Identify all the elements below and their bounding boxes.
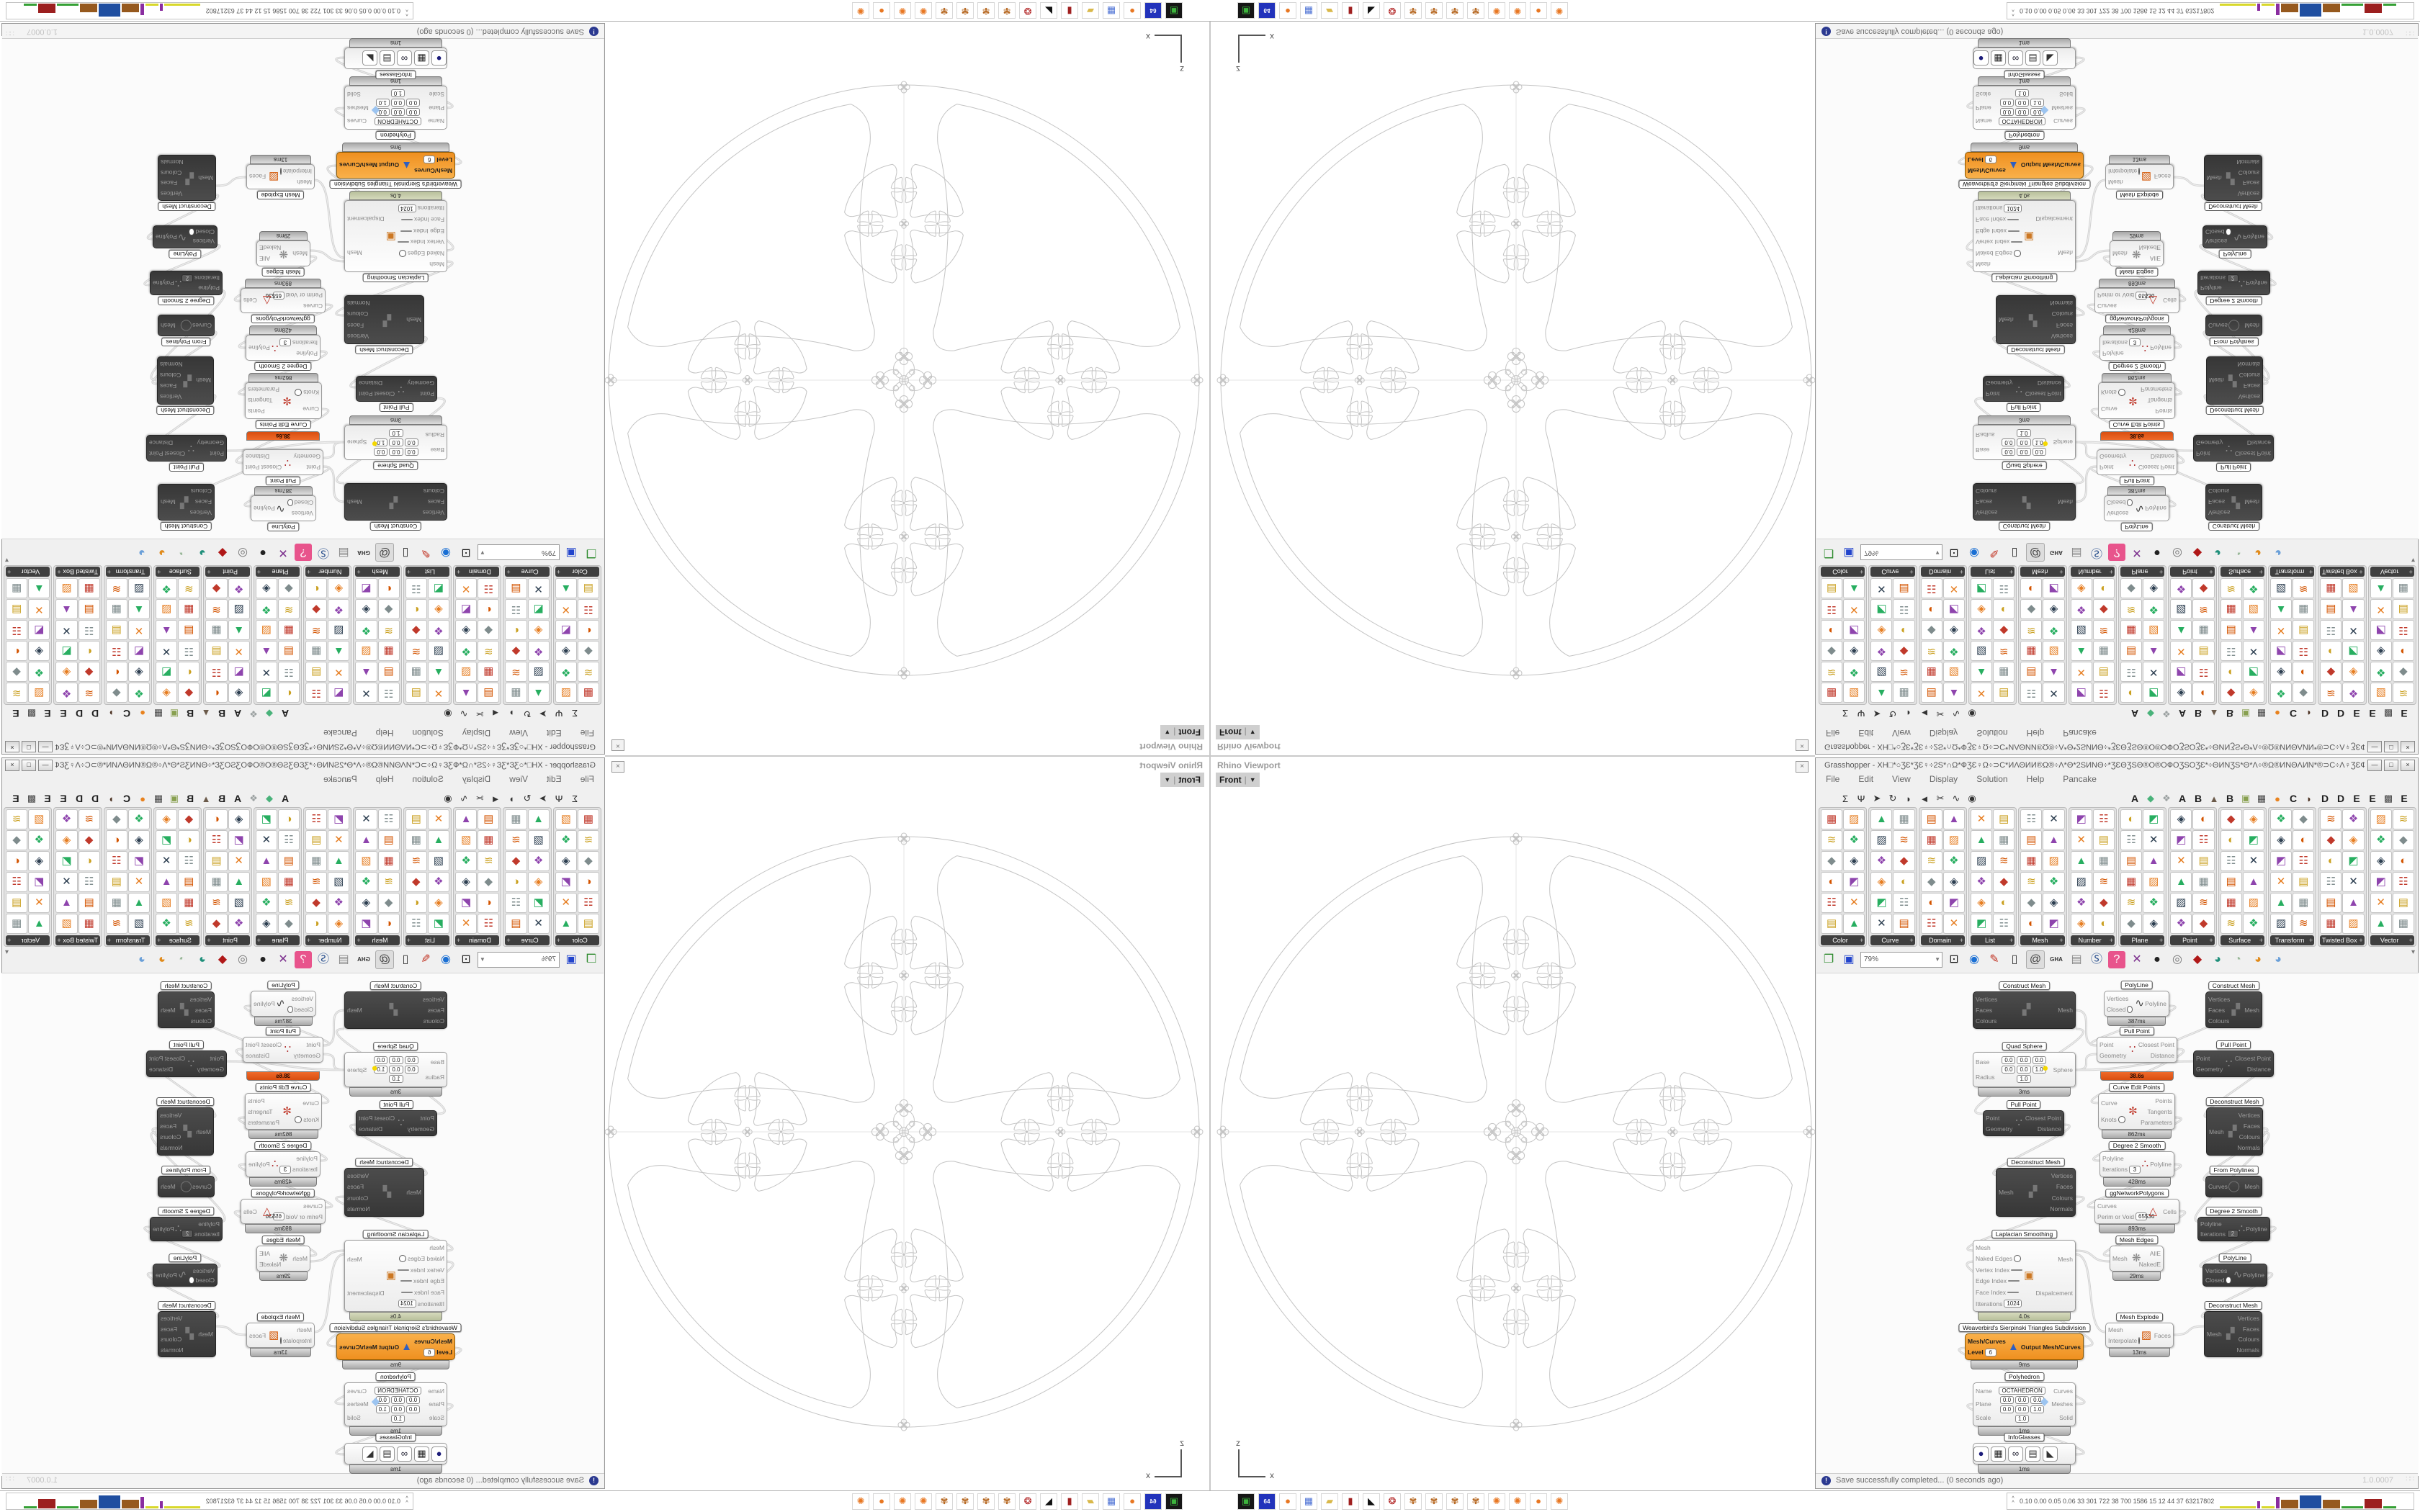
name-value-box[interactable]: OCTAHEDRON	[375, 118, 421, 126]
palette-group-label[interactable]: List+	[405, 935, 449, 945]
value-box[interactable]: 6	[423, 1349, 435, 1356]
palette-group-label[interactable]: Curve+	[1870, 935, 1914, 945]
component-icon[interactable]: ≋	[2393, 683, 2414, 703]
output-port-solid[interactable]: Solid	[347, 1414, 361, 1421]
component-icon[interactable]: ☷	[205, 662, 227, 682]
component-icon[interactable]: ◈	[228, 809, 250, 829]
toggle-circle[interactable]	[399, 250, 406, 257]
balloon-blue-icon[interactable]: ◕	[2269, 951, 2287, 968]
input-port-vertices[interactable]: Vertices	[2107, 510, 2133, 518]
input-port-scale[interactable]: Scale	[1976, 1414, 1993, 1421]
component-icon[interactable]: ≋	[505, 830, 526, 850]
toggle-circle[interactable]	[287, 500, 293, 507]
info-chip-icon[interactable]: ∞	[397, 51, 412, 66]
profiler-chevrons-icon[interactable]: ^^	[403, 1497, 411, 1506]
component-icon[interactable]: ≋	[6, 683, 27, 703]
inkscape-icon[interactable]: ◣	[1363, 2, 1380, 19]
component-icon[interactable]: ☷	[378, 683, 400, 703]
rhino-viewport[interactable]: Rhino Viewport Front | ▼ × z x	[605, 756, 1210, 1490]
media-red-icon[interactable]: ▮	[1061, 1493, 1078, 1510]
menu-item-help[interactable]: Help	[2027, 774, 2045, 788]
output-port-curves[interactable]: Curves	[347, 1387, 367, 1395]
tab-d1[interactable]: D	[2317, 793, 2333, 804]
output-port-normals[interactable]: Normals	[160, 361, 183, 368]
component-icon[interactable]: ◐	[1921, 893, 1942, 913]
input-port-closed[interactable]: Closed	[2107, 500, 2133, 507]
component-icon[interactable]: ▨	[2370, 683, 2392, 703]
galapagos-icon[interactable]: ✕	[2128, 951, 2146, 968]
output-port-distance[interactable]: Distance	[246, 454, 269, 461]
menu-item-help[interactable]: Help	[376, 774, 394, 788]
gimp-icon-4[interactable]: ✾	[936, 1493, 953, 1510]
tab-e3[interactable]: E	[8, 793, 24, 804]
input-port-mesh[interactable]: Mesh	[194, 1128, 211, 1135]
output-port-distance[interactable]: Distance	[2038, 1125, 2061, 1133]
output-port-sphere[interactable]: Sphere	[347, 439, 367, 446]
component-icon[interactable]: ❖	[2270, 683, 2292, 703]
help-box-icon[interactable]: ?	[2108, 951, 2125, 968]
info-chip-icon[interactable]: ∞	[2008, 1446, 2023, 1462]
component-icon[interactable]: ☷	[278, 830, 300, 850]
output-port-distance[interactable]: Distance	[149, 439, 173, 446]
component-icon[interactable]: ✕	[1971, 683, 1992, 703]
component-icon[interactable]: ◩	[455, 599, 477, 619]
component-icon[interactable]: ▤	[2093, 830, 2115, 850]
component-icon[interactable]: ▨	[228, 893, 250, 913]
output-port-cells[interactable]: Cells	[2163, 297, 2177, 305]
canvas-zoom-select[interactable]: 79%▼	[1860, 544, 1942, 560]
component-icon[interactable]: ❖	[2143, 893, 2164, 913]
output-port-closest-point[interactable]: Closest Point	[359, 391, 395, 398]
input-port-mesh[interactable]: Mesh	[1976, 1244, 2022, 1251]
output-port-output-mesh-curves[interactable]: Output Mesh/Curves	[2021, 162, 2081, 169]
component-icon[interactable]: ◐	[2093, 914, 2115, 934]
component-icon[interactable]: ◩	[28, 620, 50, 640]
maximize-button[interactable]: □	[22, 741, 36, 752]
component-icon[interactable]: ☷	[2220, 851, 2242, 871]
component-icon[interactable]: ◩	[1971, 914, 1992, 934]
output-port-polyline[interactable]: Polyline	[2150, 1161, 2172, 1168]
plane-value-box[interactable]: 0.0	[405, 1066, 418, 1074]
component-icon[interactable]: ☷	[405, 914, 427, 934]
component-icon[interactable]: ☷	[6, 620, 27, 640]
component-icon[interactable]: ☷	[1921, 914, 1942, 934]
preview-eye-icon[interactable]: ◉	[437, 544, 454, 561]
component-icon[interactable]: ◈	[1971, 599, 1992, 619]
component-icon[interactable]: ◩	[156, 830, 177, 850]
component-icon[interactable]: ❖	[528, 851, 550, 871]
plane-value-box[interactable]: 0.0	[2015, 1405, 2029, 1413]
input-port-base[interactable]: Base	[426, 446, 444, 454]
component-icon[interactable]: ≋	[2293, 578, 2314, 598]
component-icon[interactable]: ◐	[2120, 809, 2142, 829]
component-icon[interactable]: ❖	[555, 662, 577, 682]
tab-d2[interactable]: D	[2333, 793, 2349, 804]
component-icon[interactable]: ◩	[2243, 662, 2264, 682]
window-titlebar[interactable]: Grasshopper - XH□*○ƷƐ*ƷƐ♀÷2S*∩Ω*ФƷƐ♀Ω÷⊃C…	[2, 758, 604, 773]
gimp-icon-3[interactable]: ✾	[1446, 2, 1464, 19]
tab-gem-icon[interactable]: ◆	[2143, 793, 2159, 804]
plane-value-box[interactable]: 0.0	[2015, 109, 2029, 117]
component-icon[interactable]: ▦	[478, 830, 499, 850]
component-icon[interactable]: ❖	[228, 578, 250, 598]
sets-tree-icon[interactable]: Ψ	[551, 793, 567, 804]
component-icon[interactable]: ❖	[228, 914, 250, 934]
resize-grip[interactable]: ∷∷	[6, 1475, 14, 1483]
output-port-distance[interactable]: Distance	[359, 1125, 382, 1133]
output-port-polyline[interactable]: Polyline	[248, 1161, 270, 1168]
component-icon[interactable]: ▦	[2020, 851, 2042, 871]
palette-group-label[interactable]: Plane+	[2120, 935, 2164, 945]
component-icon[interactable]: ◈	[256, 914, 277, 934]
output-port-nakede[interactable]: NakedE	[259, 1261, 281, 1268]
input-port-colours[interactable]: Colours	[423, 1017, 444, 1025]
component-icon[interactable]: ≋	[205, 893, 227, 913]
component-icon[interactable]: ≋	[2192, 599, 2214, 619]
component-icon[interactable]: ❖	[2170, 578, 2192, 598]
palette-group-label[interactable]: Vector+	[6, 567, 50, 577]
gh-node-from-polylines[interactable]: From PolylinesCurves◯Mesh	[158, 1176, 215, 1197]
input-port-face-index[interactable]: Face Index	[1976, 1289, 2022, 1296]
input-port-closed[interactable]: Closed	[287, 1006, 313, 1013]
component-icon[interactable]: ▤	[1921, 809, 1942, 829]
gha-installer-icon[interactable]: GHA	[2048, 544, 2065, 561]
component-icon[interactable]: ☷	[305, 683, 327, 703]
component-icon[interactable]: ▤	[79, 893, 100, 913]
finder-icon[interactable]: Ⓢ	[315, 544, 332, 561]
palette-group-label[interactable]: Number+	[2071, 935, 2115, 945]
input-port-name[interactable]: Name	[1976, 117, 1993, 125]
transform-curl-icon[interactable]: ∿	[456, 793, 472, 804]
tab-b1[interactable]: B	[214, 793, 230, 804]
component-icon[interactable]: ◈	[2170, 809, 2192, 829]
component-icon[interactable]: ◆	[2093, 893, 2115, 913]
gh-node-mesh-explode[interactable]: Mesh ExplodeMeshInterpolate▨Faces13ms	[246, 164, 315, 189]
toggle-circle[interactable]	[287, 1006, 293, 1013]
component-icon[interactable]: ❖	[2370, 830, 2392, 850]
gimp-icon-4[interactable]: ✾	[936, 2, 953, 19]
zoom-extents-icon[interactable]: ⊡	[1945, 951, 1963, 968]
input-port-radius[interactable]: Radius	[1976, 431, 1994, 438]
gh-node-construct-mesh[interactable]: Construct MeshVerticesFacesColours▞Mesh	[2205, 991, 2262, 1028]
palette-group-label[interactable]: Transform+	[2270, 567, 2314, 577]
component-icon[interactable]: ▤	[305, 830, 327, 850]
output-port-nakede[interactable]: NakedE	[2139, 245, 2161, 252]
component-icon[interactable]: ◆	[1893, 851, 1914, 871]
component-icon[interactable]: ▦	[106, 893, 127, 913]
component-icon[interactable]: ▨	[1870, 662, 1892, 682]
palette-group-label[interactable]: Point+	[2170, 935, 2214, 945]
component-icon[interactable]: ✕	[1943, 914, 1965, 934]
component-icon[interactable]: ◐	[278, 809, 300, 829]
blender-icon-1[interactable]: ✺	[1488, 1493, 1505, 1510]
component-icon[interactable]: ❖	[256, 893, 277, 913]
component-icon[interactable]: ▦	[2393, 578, 2414, 598]
tab-shield-icon[interactable]: ▣	[2238, 708, 2254, 719]
viewport-close-button[interactable]: ×	[1796, 739, 1809, 751]
component-icon[interactable]: ✕	[2243, 851, 2264, 871]
vector-arrow-icon[interactable]: ➤	[1869, 708, 1885, 719]
input-port-iterations[interactable]: Iterations3	[2102, 338, 2140, 346]
value-box[interactable]: 3	[279, 338, 291, 346]
component-icon[interactable]: ◆	[578, 641, 599, 661]
output-port-distance[interactable]: Distance	[359, 380, 382, 387]
gh-node-pull-point[interactable]: Pull PointPointGeometry∵Closest PointDis…	[356, 1110, 437, 1136]
plane-value-box[interactable]: 0.0	[406, 1405, 420, 1413]
info-chip-icon[interactable]: ◣	[362, 1446, 377, 1462]
input-port-point[interactable]: Point	[408, 1115, 434, 1122]
component-icon[interactable]: ◐	[79, 641, 100, 661]
component-icon[interactable]: ◐	[405, 893, 427, 913]
mesh-kite-icon[interactable]: ◄	[1917, 793, 1932, 804]
tab-bird-icon[interactable]: ◗	[103, 793, 119, 804]
gh-node-degree-2-smooth[interactable]: Degree 2 SmoothPolylineIterations2∴Polyl…	[2197, 1217, 2270, 1241]
menu-item-edit[interactable]: Edit	[547, 724, 562, 738]
surface-patch-icon[interactable]: ◗	[503, 708, 519, 719]
component-icon[interactable]: ▲	[355, 830, 377, 850]
component-icon[interactable]: ◩	[2170, 662, 2192, 682]
output-port-cells[interactable]: Cells	[243, 297, 257, 305]
output-port-colours[interactable]: Colours	[2238, 1336, 2259, 1343]
component-icon[interactable]: ✕	[328, 830, 349, 850]
input-port-naked-edges[interactable]: Naked Edges	[1976, 250, 2022, 257]
component-icon[interactable]: ≋	[178, 578, 200, 598]
component-icon[interactable]: ▲	[28, 914, 50, 934]
tab-b1[interactable]: B	[2190, 793, 2206, 804]
plane-value-box[interactable]: 0.0	[406, 1396, 420, 1404]
output-port-faces[interactable]: Faces	[347, 1183, 364, 1190]
input-port-mesh[interactable]: Mesh	[194, 377, 211, 384]
output-port-closest-point[interactable]: Closest Point	[2235, 450, 2271, 457]
menu-item-display[interactable]: Display	[462, 724, 490, 738]
component-icon[interactable]: ❖	[1870, 641, 1892, 661]
blender-icon-2[interactable]: ✺	[894, 2, 911, 19]
tab-b1[interactable]: B	[2190, 708, 2206, 719]
output-port-cells[interactable]: Cells	[2163, 1208, 2177, 1215]
plane-value-box[interactable]: 0.0	[405, 438, 418, 446]
value-box[interactable]: 2	[181, 274, 193, 282]
component-icon[interactable]: ◩	[528, 893, 550, 913]
component-icon[interactable]: ❖	[2370, 662, 2392, 682]
tab-flower-icon[interactable]: ❖	[2159, 793, 2174, 804]
gh-node-from-polylines[interactable]: From PolylinesCurves◯Mesh	[2205, 1176, 2262, 1197]
menu-item-edit[interactable]: Edit	[547, 774, 562, 788]
component-icon[interactable]: ◈	[2270, 830, 2292, 850]
output-port-faces[interactable]: Faces	[2244, 1122, 2260, 1130]
input-port-curve[interactable]: Curve	[2101, 405, 2125, 413]
component-icon[interactable]: ✕	[2170, 641, 2192, 661]
component-icon[interactable]: ☷	[578, 599, 599, 619]
input-port-curves[interactable]: Curves	[2097, 302, 2146, 310]
input-port-itterations[interactable]: Itterations1024	[398, 204, 444, 212]
gimp-icon-1[interactable]: ✾	[1404, 2, 1422, 19]
output-port-polyline[interactable]: Polyline	[2243, 1272, 2264, 1279]
output-port-nakede[interactable]: NakedE	[259, 245, 281, 252]
firefox-icon-2[interactable]: ●	[1530, 1493, 1547, 1510]
component-icon[interactable]: ✕	[2170, 851, 2192, 871]
maths-sigma-icon[interactable]: Σ	[567, 708, 583, 719]
component-icon[interactable]: ✕	[256, 662, 277, 682]
component-icon[interactable]: ☷	[2192, 830, 2214, 850]
toggle-circle[interactable]	[2226, 1277, 2231, 1284]
input-port-mesh-curves[interactable]: Mesh/Curves	[414, 168, 452, 175]
galapagos-icon[interactable]: ✕	[2128, 544, 2146, 561]
info-chip-icon[interactable]: ∞	[397, 1446, 412, 1462]
input-port-geometry[interactable]: Geometry	[197, 1066, 224, 1073]
tab-e1[interactable]: E	[2349, 708, 2365, 719]
input-port-base[interactable]: Base	[1976, 1058, 1994, 1066]
component-icon[interactable]: ✕	[555, 893, 577, 913]
exit-door-icon[interactable]: ▯	[397, 951, 414, 968]
output-port-mesh[interactable]: Mesh	[161, 322, 176, 329]
output-port-colours[interactable]: Colours	[161, 1336, 181, 1343]
blender-icon-1[interactable]: ✺	[1488, 2, 1505, 19]
gh-node-mesh-explode[interactable]: Mesh ExplodeMeshInterpolate▨Faces13ms	[2105, 1323, 2174, 1348]
value-box[interactable]: 3	[2129, 338, 2141, 346]
input-port-faces[interactable]: Faces	[191, 499, 212, 506]
plane-value-box[interactable]: 0.0	[391, 1405, 405, 1413]
input-port-colours[interactable]: Colours	[2208, 488, 2229, 495]
component-icon[interactable]: ▨	[455, 830, 477, 850]
help-box-icon[interactable]: ?	[295, 544, 312, 561]
input-port-naked-edges[interactable]: Naked Edges	[398, 1255, 444, 1262]
palette-group-label[interactable]: Plane+	[2120, 567, 2164, 577]
balloon-green-icon[interactable]: ◕	[2209, 544, 2226, 561]
output-port-parameters[interactable]: Parameters	[248, 1119, 279, 1126]
component-icon[interactable]: ☷	[2393, 620, 2414, 640]
component-icon[interactable]: ▲	[2243, 620, 2264, 640]
component-icon[interactable]: ≋	[6, 809, 27, 829]
input-port-vertices[interactable]: Vertices	[1976, 996, 1997, 1003]
output-port-meshes[interactable]: Meshes	[347, 104, 369, 112]
component-icon[interactable]: ▦	[2220, 599, 2242, 619]
component-icon[interactable]: ✕	[555, 599, 577, 619]
gh-node-infoglasses[interactable]: InfoGlasses●▦∞▤◣1ms	[1973, 1443, 2076, 1464]
output-port-polyline[interactable]: Polyline	[2145, 505, 2166, 512]
gh-node-construct-mesh[interactable]: Construct MeshVerticesFacesColours▞Mesh	[158, 484, 215, 521]
gh-node-construct-mesh[interactable]: Construct MeshVerticesFacesColours▞Mesh	[344, 483, 447, 521]
component-icon[interactable]: ▲	[428, 662, 449, 682]
menu-item-help[interactable]: Help	[376, 724, 394, 738]
cluster-black-icon[interactable]: ●	[2148, 951, 2166, 968]
component-icon[interactable]: ❖	[355, 620, 377, 640]
vector-arrow-icon[interactable]: ➤	[535, 793, 551, 804]
component-icon[interactable]: ▤	[278, 641, 300, 661]
component-icon[interactable]: ≋	[2120, 599, 2142, 619]
component-icon[interactable]: ◐	[2020, 914, 2042, 934]
toggle-circle[interactable]	[2118, 1116, 2125, 1123]
gh-node-ggnetworkpolygons[interactable]: ggNetworkPolygonsCurvesPerim or Void6553…	[241, 288, 326, 313]
component-icon[interactable]: ◆	[1993, 872, 2015, 892]
component-icon[interactable]: ◩	[1971, 578, 1992, 598]
output-port-closest-point[interactable]: Closest Point	[246, 1041, 282, 1048]
component-icon[interactable]: ▨	[2043, 851, 2064, 871]
gh-node-laplacian-smoothing[interactable]: Laplacian SmoothingMeshNaked EdgesVertex…	[344, 200, 447, 272]
component-icon[interactable]: ≋	[1921, 851, 1942, 871]
component-icon[interactable]: ✕	[2071, 830, 2092, 850]
value-box[interactable]	[401, 219, 413, 220]
component-icon[interactable]: ▲	[55, 893, 77, 913]
component-icon[interactable]: ✕	[428, 809, 449, 829]
input-port-face-index[interactable]: Face Index	[398, 216, 444, 223]
component-icon[interactable]: ◈	[555, 641, 577, 661]
component-icon[interactable]: ☷	[178, 851, 200, 871]
gimp-icon-2[interactable]: ✾	[1425, 1493, 1443, 1510]
sketch-pen-icon[interactable]: ✎	[1986, 544, 2003, 561]
sketch-pen-icon[interactable]: ✎	[1986, 951, 2003, 968]
component-icon[interactable]: ◩	[2071, 683, 2092, 703]
palette-group-label[interactable]: Color+	[555, 567, 599, 577]
output-port-solid[interactable]: Solid	[2059, 91, 2073, 98]
component-icon[interactable]: ☷	[205, 830, 227, 850]
component-icon[interactable]: ▤	[79, 599, 100, 619]
component-icon[interactable]: ◐	[106, 830, 127, 850]
component-icon[interactable]: ◈	[1870, 620, 1892, 640]
component-icon[interactable]: ◐	[2093, 578, 2115, 598]
component-icon[interactable]: ▨	[1943, 662, 1965, 682]
output-port-closest-point[interactable]: Closest Point	[149, 450, 185, 457]
transform-curl-icon[interactable]: ∿	[1948, 708, 1964, 719]
component-icon[interactable]: ◐	[578, 872, 599, 892]
gh-node-construct-mesh[interactable]: Construct MeshVerticesFacesColours▞Mesh	[1973, 991, 2076, 1029]
value-box[interactable]	[398, 241, 409, 243]
value-box[interactable]	[398, 1269, 409, 1271]
value-box[interactable]: 65536	[273, 1212, 284, 1220]
ruby-gem-icon[interactable]: ◆	[2189, 544, 2206, 561]
output-port-vertices[interactable]: Vertices	[160, 393, 181, 400]
component-icon[interactable]: ◆	[378, 893, 400, 913]
component-icon[interactable]: ≋	[405, 851, 427, 871]
input-port-vertices[interactable]: Vertices	[189, 1267, 215, 1274]
component-icon[interactable]: ❖	[428, 872, 449, 892]
input-port-polyline[interactable]: Polyline	[281, 350, 318, 357]
component-icon[interactable]: ◆	[106, 683, 127, 703]
tab-b1[interactable]: B	[214, 708, 230, 719]
minimize-button[interactable]: —	[2367, 741, 2382, 752]
output-port-mesh[interactable]: Mesh	[161, 499, 176, 506]
component-icon[interactable]: ≋	[1993, 851, 2015, 871]
component-icon[interactable]: ≋	[278, 599, 300, 619]
component-icon[interactable]: ☷	[505, 599, 526, 619]
balloon-orange-icon[interactable]: ◕	[153, 544, 171, 561]
value-box[interactable]: 1024	[2004, 204, 2022, 212]
component-icon[interactable]: ◩	[2243, 830, 2264, 850]
input-port-curves[interactable]: Curves	[2208, 322, 2226, 329]
balloon-pale-icon[interactable]: ◔	[2229, 544, 2246, 561]
blender-icon-3[interactable]: ✺	[852, 2, 869, 19]
save-file-icon[interactable]: ▣	[1840, 544, 1857, 561]
input-port-closed[interactable]: Closed	[2205, 1277, 2231, 1284]
component-icon[interactable]: ✕	[2043, 683, 2064, 703]
component-icon[interactable]: ◩	[128, 851, 150, 871]
component-icon[interactable]: ▤	[2020, 830, 2042, 850]
component-icon[interactable]: ✕	[455, 578, 477, 598]
preview-eye-icon[interactable]: ◉	[437, 951, 454, 968]
component-icon[interactable]: ◈	[1843, 851, 1865, 871]
output-port-alle[interactable]: AllE	[2150, 1250, 2161, 1257]
input-port-geometry[interactable]: Geometry	[294, 454, 321, 461]
component-icon[interactable]: ❖	[55, 683, 77, 703]
firefox-icon-2[interactable]: ●	[1530, 2, 1547, 19]
gh-node-degree-2-smooth[interactable]: Degree 2 SmoothPolylineIterations2∴Polyl…	[150, 271, 223, 295]
component-icon[interactable]: ▤	[478, 809, 499, 829]
input-port-faces[interactable]: Faces	[2208, 499, 2229, 506]
maximize-button[interactable]: □	[2384, 760, 2398, 771]
component-icon[interactable]: ▤	[1893, 914, 1914, 934]
value-box[interactable]: 1024	[2004, 1300, 2022, 1308]
input-port-mesh-curves[interactable]: Mesh/Curves	[1968, 1338, 2006, 1345]
input-port-point[interactable]: Point	[2099, 464, 2126, 472]
